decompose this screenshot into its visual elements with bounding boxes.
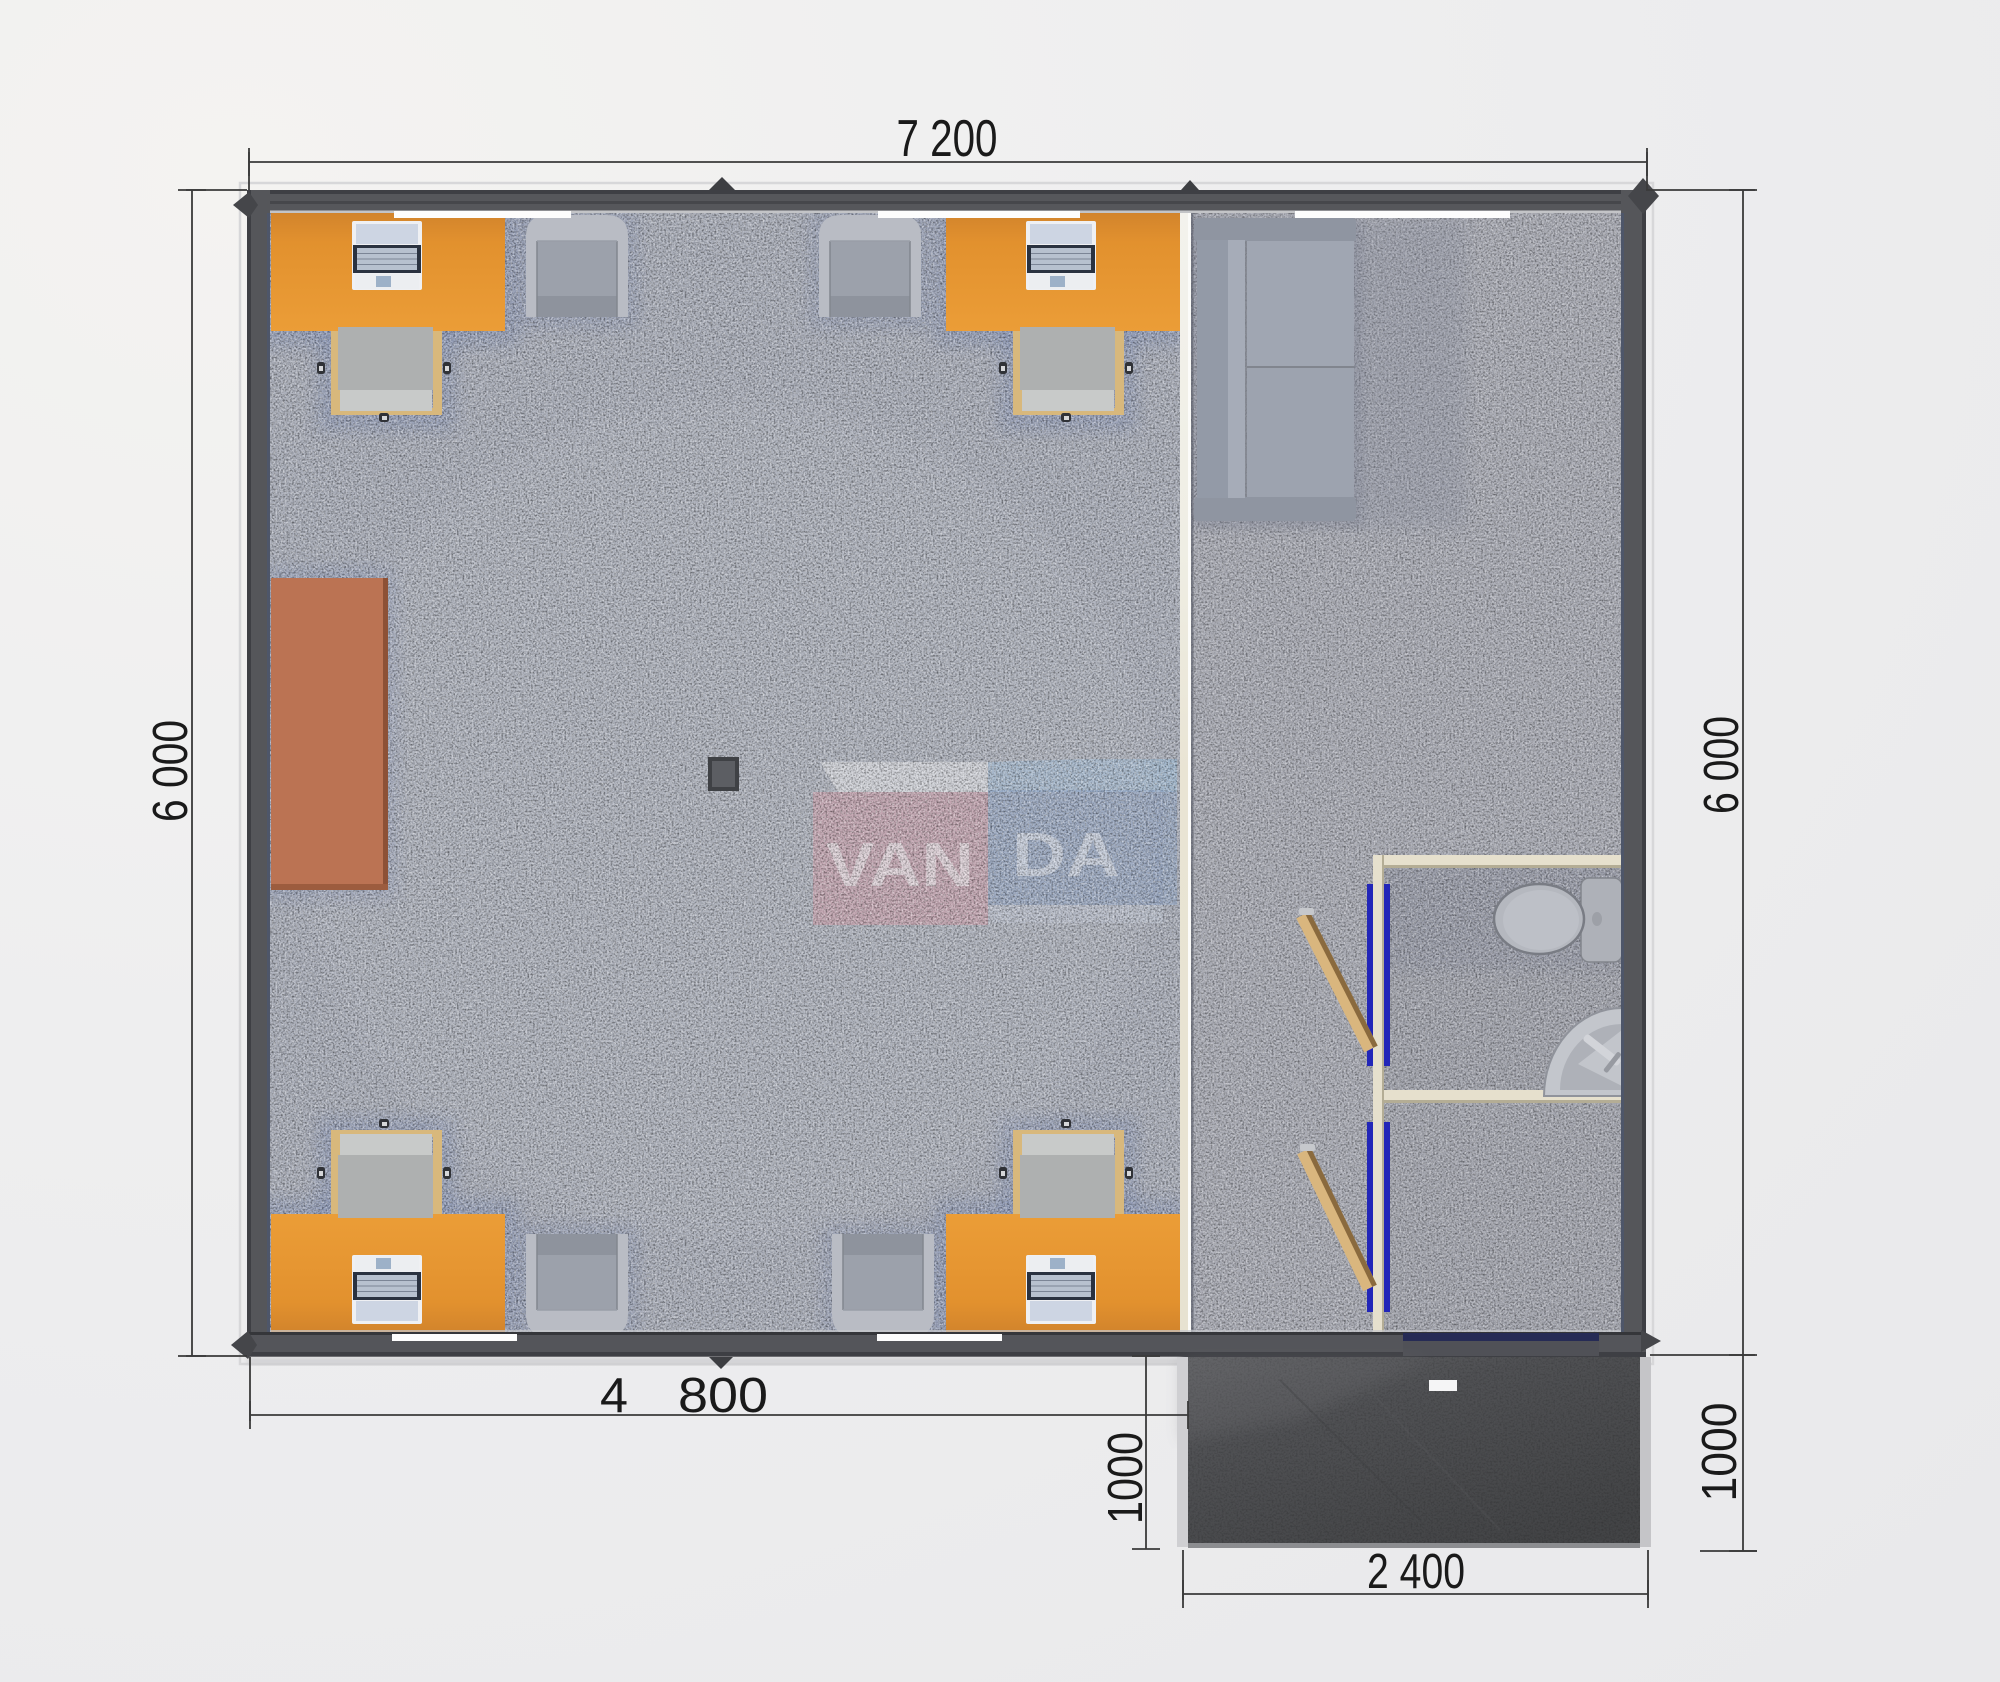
svg-text:2 400: 2 400 xyxy=(1367,1545,1465,1599)
svg-text:7 200: 7 200 xyxy=(897,110,998,168)
svg-text:4: 4 xyxy=(600,1369,628,1423)
svg-text:1000: 1000 xyxy=(1099,1432,1153,1524)
svg-text:6 000: 6 000 xyxy=(1695,716,1749,814)
svg-text:1000: 1000 xyxy=(1693,1403,1747,1502)
svg-text:800: 800 xyxy=(678,1369,768,1423)
svg-text:6 000: 6 000 xyxy=(144,720,198,822)
